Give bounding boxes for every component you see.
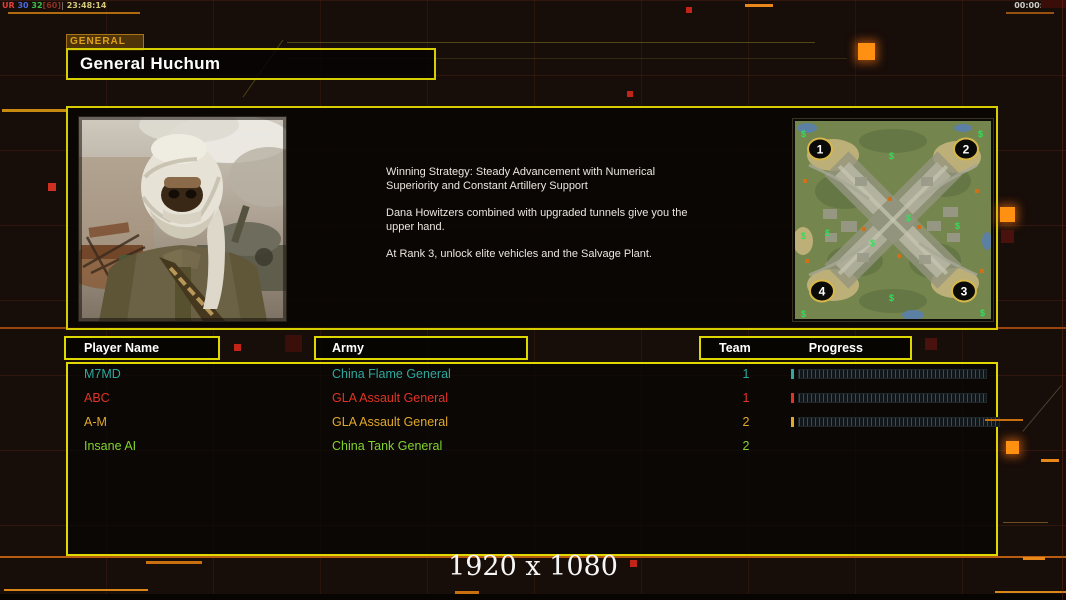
svg-text:$: $ (955, 221, 960, 231)
orange-square (858, 43, 875, 60)
player-army: China Tank General (332, 439, 442, 453)
red-square (627, 91, 633, 97)
svg-text:$: $ (889, 293, 894, 303)
red-square (686, 7, 692, 13)
player-team: 1 (726, 391, 766, 405)
gentool-ur: UR (2, 1, 15, 10)
progress-fill (791, 369, 794, 379)
svg-text:$: $ (980, 308, 985, 318)
player-army: GLA Assault General (332, 415, 448, 429)
progress-bar-row-0 (791, 369, 987, 379)
header-player-name-label: Player Name (66, 341, 159, 355)
bottom-right-line (995, 591, 1066, 593)
red-square (630, 560, 637, 567)
player-army: China Flame General (332, 367, 451, 381)
progress-fill (791, 417, 794, 427)
red-square (48, 183, 56, 191)
player-name: ABC (84, 391, 110, 405)
progress-track (798, 369, 987, 379)
bottom-strip (0, 594, 1066, 600)
spawn-1: 1 (817, 143, 824, 157)
general-portrait (78, 116, 287, 322)
gentool-overlay: UR 30 32[60]| 23:48:14 (2, 1, 107, 10)
gentool-separator: | (61, 1, 64, 10)
svg-text:$: $ (801, 231, 806, 241)
player-team: 2 (726, 439, 766, 453)
header-army: Army (314, 336, 528, 360)
gla-general-portrait-art (79, 117, 286, 321)
orange-square (1000, 207, 1015, 222)
progress-bar-row-1 (791, 393, 987, 403)
gentool-fps: 30 (17, 1, 28, 10)
strategy-line-1: Winning Strategy: Steady Advancement wit… (386, 166, 704, 193)
header-player-name: Player Name (64, 336, 220, 360)
player-row-0: M7MD China Flame General 1 (68, 362, 992, 386)
progress-track (798, 417, 1000, 427)
player-army: GLA Assault General (332, 391, 448, 405)
player-list: M7MD China Flame General 1 ABC GLA Assau… (66, 362, 998, 556)
header-progress-label: Progress (751, 341, 863, 355)
svg-text:$: $ (825, 228, 830, 238)
dash-bottom (455, 591, 479, 594)
dark-red-square (285, 335, 302, 352)
gentool-rate: 32 (31, 1, 42, 10)
red-square (234, 344, 241, 351)
spawn-4: 4 (819, 285, 826, 299)
player-row-3: Insane AI China Tank General 2 (68, 434, 992, 458)
svg-text:$: $ (801, 309, 806, 319)
circuit-diagonal (1022, 385, 1061, 432)
progress-bar-row-2 (791, 417, 1000, 427)
progress-track (798, 393, 987, 403)
progress-fill (791, 393, 794, 403)
resolution-label: 1920 x 1080 (0, 551, 1066, 582)
dash-right (1041, 459, 1059, 462)
map-preview-art: $$ $$ $$ $$ $$ $ 1 2 3 4 (795, 121, 991, 319)
edge-line (1062, 0, 1063, 600)
player-name: Insane AI (84, 439, 136, 453)
player-row-2: A-M GLA Assault General 2 (68, 410, 992, 434)
circuit-line (287, 42, 815, 43)
spawn-2: 2 (963, 143, 970, 157)
accent-line (985, 419, 1023, 421)
map-preview: $$ $$ $$ $$ $$ $ 1 2 3 4 (793, 119, 993, 321)
player-team: 2 (726, 415, 766, 429)
header-team-progress: Team Progress (699, 336, 912, 360)
general-name-box: General Huchum (66, 48, 436, 80)
player-row-1: ABC GLA Assault General 1 (68, 386, 992, 410)
bottom-left-line (4, 589, 148, 591)
svg-text:$: $ (870, 238, 875, 248)
accent-line (2, 109, 66, 112)
player-name: A-M (84, 415, 107, 429)
dark-red-square (1001, 230, 1014, 243)
gentool-clock: 23:48:14 (67, 1, 107, 10)
timer-underline (1006, 12, 1054, 14)
dark-red-square (925, 338, 937, 350)
strategy-line-2: Dana Howitzers combined with upgraded tu… (386, 207, 704, 234)
general-name: General Huchum (68, 54, 220, 74)
svg-text:$: $ (801, 129, 806, 139)
strategy-text: Winning Strategy: Steady Advancement wit… (386, 166, 704, 276)
svg-text:$: $ (978, 129, 983, 139)
spawn-3: 3 (961, 285, 968, 299)
gentool-cap: [60] (43, 1, 61, 10)
general-info-panel: Winning Strategy: Steady Advancement wit… (66, 106, 998, 330)
svg-text:$: $ (906, 213, 911, 223)
orange-square (1006, 441, 1019, 454)
svg-text:$: $ (889, 151, 894, 161)
dash-top (745, 4, 773, 7)
accent-line (1003, 522, 1048, 523)
gentool-underline (8, 12, 140, 14)
player-name: M7MD (84, 367, 121, 381)
strategy-line-3: At Rank 3, unlock elite vehicles and the… (386, 248, 704, 262)
header-army-label: Army (316, 341, 364, 355)
header-team-label: Team (701, 341, 751, 355)
player-team: 1 (726, 367, 766, 381)
